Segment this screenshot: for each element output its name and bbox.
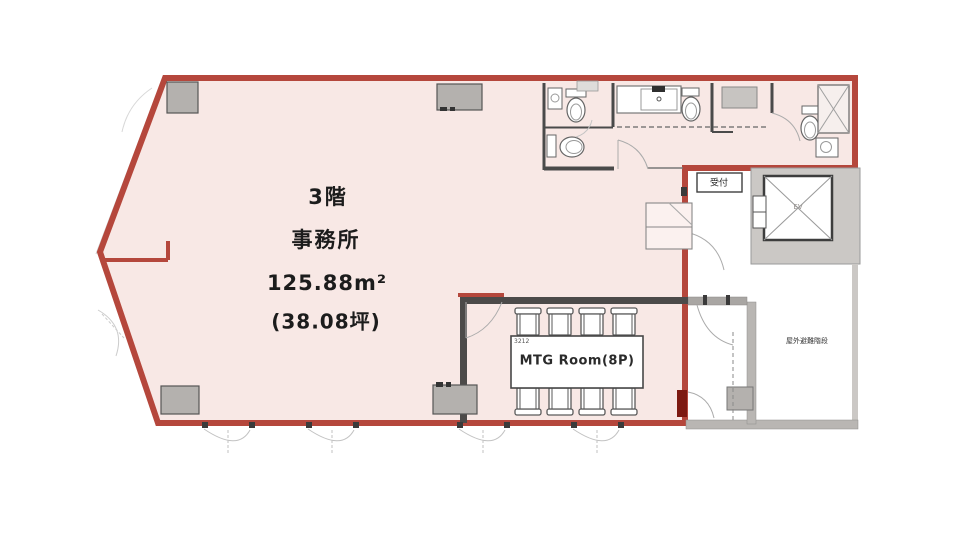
floor-plan: 3階 事務所 125.88m² (38.08坪) MTG Room(8P) 32…: [0, 0, 978, 544]
pipe-space-icon: [818, 85, 849, 133]
entrance-door: [677, 390, 687, 417]
escape-stairs-label: 屋外避難階段: [786, 336, 828, 346]
area-square-meters: 125.88m²: [267, 271, 387, 295]
area-tsubo: (38.08坪): [271, 306, 381, 335]
chair-icon: [611, 308, 637, 335]
hand-basin-icon: [816, 138, 838, 157]
column: [161, 386, 199, 414]
toilet-icon: [566, 89, 586, 122]
reception-label: 受付: [710, 176, 728, 189]
elevator-door-icon: [753, 196, 766, 228]
chair-icon: [579, 308, 605, 335]
kitchenette-unit: [646, 203, 692, 249]
chair-icon: [515, 308, 541, 335]
toilet-icon: [547, 135, 584, 157]
chair-icon: [515, 388, 541, 415]
window-swing-symbols: [202, 422, 624, 453]
ac-unit: [437, 84, 482, 111]
wall-vent: [577, 81, 598, 91]
chair-icon: [579, 388, 605, 415]
floor-plan-drawing: [0, 0, 978, 544]
mtg-room-label: MTG Room(8P): [520, 354, 635, 369]
elevator-shaft: [751, 168, 860, 264]
floor-label: 3階: [308, 181, 348, 211]
toilet-icon: [801, 106, 819, 140]
chair-icon: [547, 388, 573, 415]
use-label: 事務所: [292, 224, 361, 254]
column: [167, 82, 198, 113]
low-cabinet: [433, 382, 477, 414]
mtg-table-code: 3212: [514, 338, 529, 345]
common-area-walls: [686, 264, 858, 429]
corridor-door-arcs: [688, 295, 733, 420]
lease-outline: [100, 78, 855, 423]
toilet-icon: [682, 88, 700, 121]
shelf-cabinet: [722, 87, 757, 108]
chair-icon: [547, 308, 573, 335]
hand-basin-icon: [548, 88, 562, 109]
chair-icon: [611, 388, 637, 415]
elevator-label: EV: [793, 203, 802, 211]
sink-counter-icon: [617, 86, 681, 113]
